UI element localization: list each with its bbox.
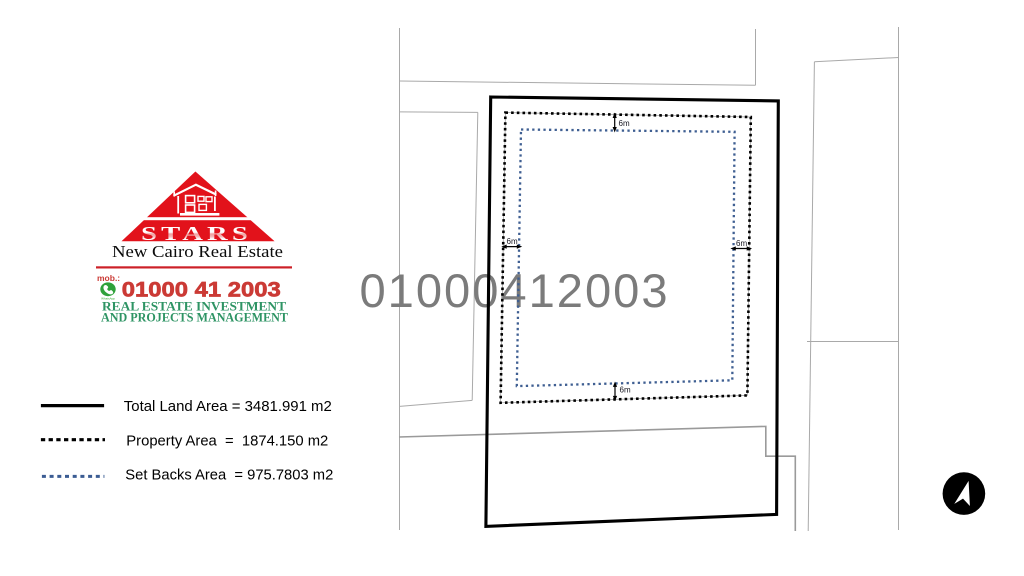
svg-text:New Cairo Real Estate: New Cairo Real Estate: [112, 242, 283, 261]
svg-text:6m: 6m: [620, 386, 631, 395]
svg-text:Total Land Area = 3481.991 m2: Total Land Area = 3481.991 m2: [124, 398, 332, 415]
svg-text:01000412003: 01000412003: [360, 265, 670, 318]
svg-text:6m: 6m: [619, 119, 630, 128]
svg-text:AND PROJECTS MANAGEMENT: AND PROJECTS MANAGEMENT: [101, 310, 288, 325]
svg-text:6m: 6m: [507, 237, 518, 246]
svg-text:6m: 6m: [736, 239, 747, 248]
svg-text:Set Backs Area = 975.7803 m2: Set Backs Area = 975.7803 m2: [125, 467, 333, 484]
svg-text:Property Area = 1874.150 m2: Property Area = 1874.150 m2: [126, 432, 328, 449]
svg-text:mob.:: mob.:: [97, 273, 120, 283]
